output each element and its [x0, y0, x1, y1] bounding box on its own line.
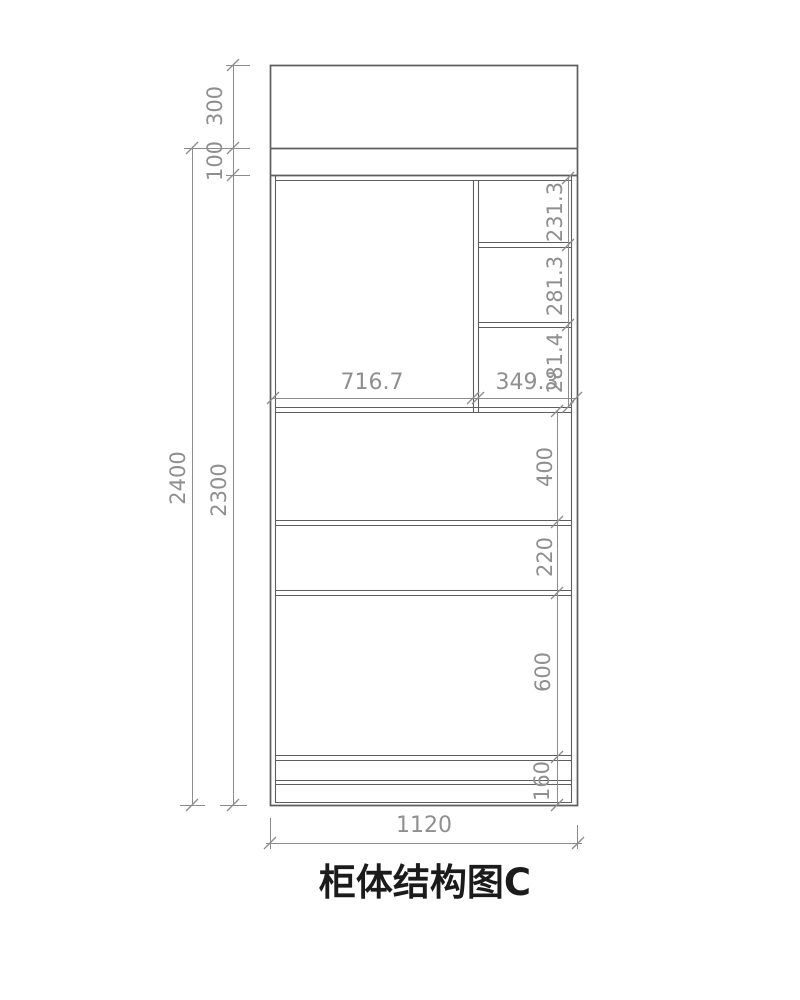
dimension-tick-marks [186, 59, 584, 849]
dim-overall-height: 2400 [166, 451, 190, 504]
dim-section-220: 220 [533, 537, 557, 577]
dim-right-cell-middle: 281.3 [543, 256, 567, 316]
dim-top-section-height: 300 [203, 86, 227, 126]
dimension-line-paths [180, 65, 582, 849]
cabinet-panels-and-shelves [275, 175, 572, 803]
dim-right-cell-top: 231.3 [543, 182, 567, 242]
cabinet-structure [271, 66, 578, 806]
cabinet-structure-drawing: 2400 2300 300 100 716.7 349.3 231.3 281.… [0, 0, 800, 1000]
dimension-lines [180, 59, 584, 849]
dim-top-gap-height: 100 [203, 141, 227, 181]
dim-section-400: 400 [533, 447, 557, 487]
dim-upper-left-width: 716.7 [341, 370, 404, 395]
drawing-canvas: 2400 2300 300 100 716.7 349.3 231.3 281.… [0, 0, 800, 1000]
dim-carcass-height: 2300 [207, 463, 231, 516]
dim-overall-width: 1120 [396, 813, 452, 838]
dim-base-height: 160 [530, 761, 554, 801]
dimension-labels: 2400 2300 300 100 716.7 349.3 231.3 281.… [166, 86, 567, 838]
dim-right-cell-bottom: 281.4 [543, 333, 567, 393]
drawing-title: 柜体结构图C [319, 861, 531, 904]
dim-section-600: 600 [531, 652, 555, 692]
cabinet-outline [271, 66, 578, 806]
